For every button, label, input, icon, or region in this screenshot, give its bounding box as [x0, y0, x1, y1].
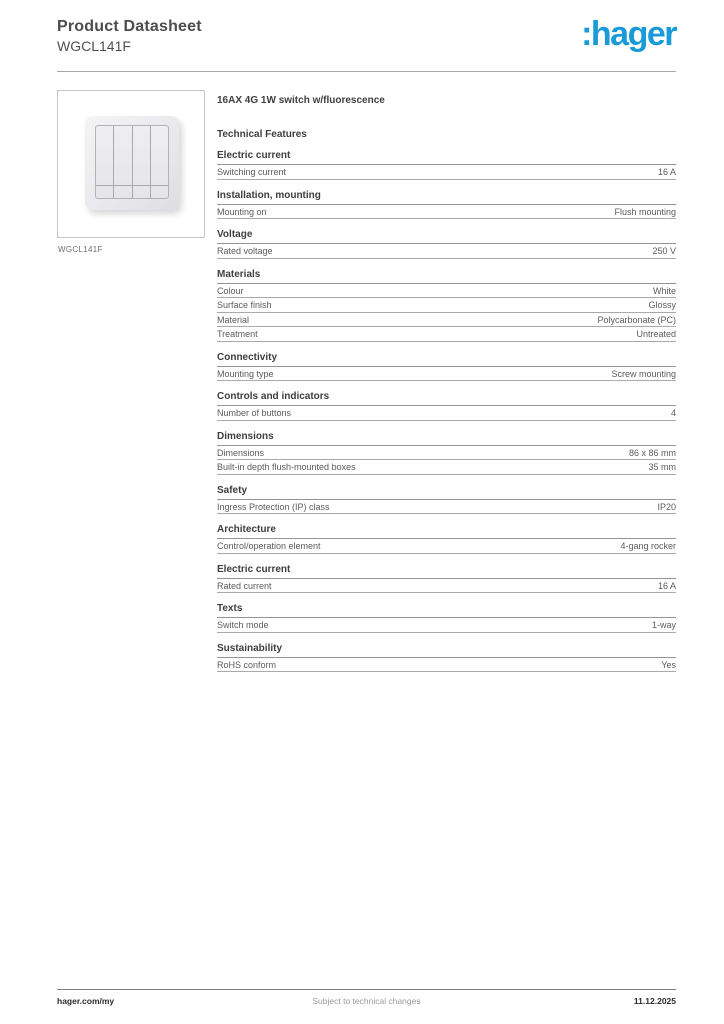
- rocker-2: [114, 126, 132, 198]
- section-rows: Control/operation element4-gang rocker: [217, 539, 676, 554]
- header-divider: [57, 71, 676, 72]
- section-heading: Connectivity: [217, 352, 676, 367]
- section-rows: Switching current16 A: [217, 165, 676, 180]
- spec-row: Rated voltage250 V: [217, 244, 676, 259]
- spec-section: Installation, mounting Mounting onFlush …: [217, 190, 676, 220]
- spec-row: Mounting typeScrew mounting: [217, 367, 676, 382]
- section-heading: Electric current: [217, 564, 676, 579]
- spec-value: 4-gang rocker: [620, 541, 676, 551]
- spec-value: Glossy: [648, 300, 676, 310]
- footer-divider: [57, 989, 676, 990]
- spec-label: Material: [217, 315, 249, 325]
- spec-label: Built-in depth flush-mounted boxes: [217, 462, 356, 472]
- spec-row: Built-in depth flush-mounted boxes35 mm: [217, 460, 676, 475]
- spec-value: 250 V: [652, 246, 676, 256]
- spec-label: Mounting type: [217, 369, 274, 379]
- section-heading: Dimensions: [217, 431, 676, 446]
- spec-section: Sustainability RoHS conformYes: [217, 643, 676, 673]
- spec-section: Materials ColourWhiteSurface finishGloss…: [217, 269, 676, 342]
- spec-value: 4: [671, 408, 676, 418]
- spec-label: Rated voltage: [217, 246, 273, 256]
- product-reference: WGCL141F: [57, 38, 131, 54]
- spec-label: Mounting on: [217, 207, 267, 217]
- spec-label: Rated current: [217, 581, 272, 591]
- spec-value: Polycarbonate (PC): [597, 315, 676, 325]
- section-rows: RoHS conformYes: [217, 658, 676, 673]
- section-rows: Dimensions86 x 86 mmBuilt-in depth flush…: [217, 446, 676, 475]
- product-image: [57, 90, 205, 238]
- spec-label: Control/operation element: [217, 541, 321, 551]
- section-rows: Ingress Protection (IP) classIP20: [217, 500, 676, 515]
- spec-section: Electric current Rated current16 A: [217, 564, 676, 594]
- spec-row: Rated current16 A: [217, 579, 676, 594]
- technical-column: 16AX 4G 1W switch w/fluorescence Technic…: [217, 90, 676, 672]
- spec-row: MaterialPolycarbonate (PC): [217, 313, 676, 328]
- rocker-3: [133, 126, 151, 198]
- section-rows: Mounting typeScrew mounting: [217, 367, 676, 382]
- spec-row: Ingress Protection (IP) classIP20: [217, 500, 676, 515]
- section-heading: Electric current: [217, 150, 676, 165]
- section-rows: ColourWhiteSurface finishGlossyMaterialP…: [217, 284, 676, 342]
- page-title: Product Datasheet: [57, 18, 202, 36]
- spec-row: Mounting onFlush mounting: [217, 205, 676, 220]
- spec-row: Switching current16 A: [217, 165, 676, 180]
- spec-row: Number of buttons4: [217, 406, 676, 421]
- spec-label: Switch mode: [217, 620, 269, 630]
- spec-value: 1-way: [652, 620, 676, 630]
- spec-section: Dimensions Dimensions86 x 86 mmBuilt-in …: [217, 431, 676, 475]
- section-heading: Safety: [217, 485, 676, 500]
- switch-plate-graphic: [85, 116, 179, 210]
- footer-date: 11.12.2025: [634, 996, 676, 1006]
- spec-row: Dimensions86 x 86 mm: [217, 446, 676, 461]
- section-rows: Switch mode1-way: [217, 618, 676, 633]
- spec-label: Dimensions: [217, 448, 264, 458]
- spec-section: Electric current Switching current16 A: [217, 150, 676, 180]
- spec-label: Number of buttons: [217, 408, 291, 418]
- spec-label: RoHS conform: [217, 660, 276, 670]
- section-rows: Rated current16 A: [217, 579, 676, 594]
- spec-section: Safety Ingress Protection (IP) classIP20: [217, 485, 676, 515]
- section-heading: Architecture: [217, 524, 676, 539]
- spec-section: Voltage Rated voltage250 V: [217, 229, 676, 259]
- spec-value: IP20: [657, 502, 676, 512]
- section-heading: Voltage: [217, 229, 676, 244]
- spec-label: Surface finish: [217, 300, 272, 310]
- spec-value: White: [653, 286, 676, 296]
- section-heading: Texts: [217, 603, 676, 618]
- spec-row: ColourWhite: [217, 284, 676, 299]
- tech-sections: Electric current Switching current16 A I…: [217, 150, 676, 672]
- spec-value: 16 A: [658, 581, 676, 591]
- spec-label: Switching current: [217, 167, 286, 177]
- spec-row: Switch mode1-way: [217, 618, 676, 633]
- spec-row: Control/operation element4-gang rocker: [217, 539, 676, 554]
- spec-value: 86 x 86 mm: [629, 448, 676, 458]
- spec-value: Yes: [661, 660, 676, 670]
- section-heading: Controls and indicators: [217, 391, 676, 406]
- product-image-caption: WGCL141F: [58, 245, 103, 254]
- spec-row: TreatmentUntreated: [217, 327, 676, 342]
- datasheet-page: Product Datasheet WGCL141F :hager WGCL14…: [0, 0, 724, 1024]
- section-heading: Sustainability: [217, 643, 676, 658]
- spec-section: Architecture Control/operation element4-…: [217, 524, 676, 554]
- spec-value: Screw mounting: [611, 369, 676, 379]
- spec-section: Texts Switch mode1-way: [217, 603, 676, 633]
- section-rows: Mounting onFlush mounting: [217, 205, 676, 220]
- spec-row: Surface finishGlossy: [217, 298, 676, 313]
- spec-label: Colour: [217, 286, 244, 296]
- rocker-1: [96, 126, 114, 198]
- section-heading: Materials: [217, 269, 676, 284]
- spec-row: RoHS conformYes: [217, 658, 676, 673]
- footer-disclaimer: Subject to technical changes: [57, 996, 676, 1006]
- spec-label: Treatment: [217, 329, 258, 339]
- section-rows: Number of buttons4: [217, 406, 676, 421]
- hager-logo: :hager: [581, 17, 676, 51]
- spec-value: Untreated: [636, 329, 676, 339]
- spec-label: Ingress Protection (IP) class: [217, 502, 330, 512]
- spec-value: Flush mounting: [614, 207, 676, 217]
- spec-value: 16 A: [658, 167, 676, 177]
- spec-value: 35 mm: [648, 462, 676, 472]
- product-name: 16AX 4G 1W switch w/fluorescence: [217, 90, 676, 106]
- spec-section: Controls and indicators Number of button…: [217, 391, 676, 421]
- rocker-area-graphic: [95, 125, 169, 199]
- spec-section: Connectivity Mounting typeScrew mounting: [217, 352, 676, 382]
- technical-features-heading: Technical Features: [217, 129, 676, 140]
- rocker-4: [151, 126, 168, 198]
- section-rows: Rated voltage250 V: [217, 244, 676, 259]
- section-heading: Installation, mounting: [217, 190, 676, 205]
